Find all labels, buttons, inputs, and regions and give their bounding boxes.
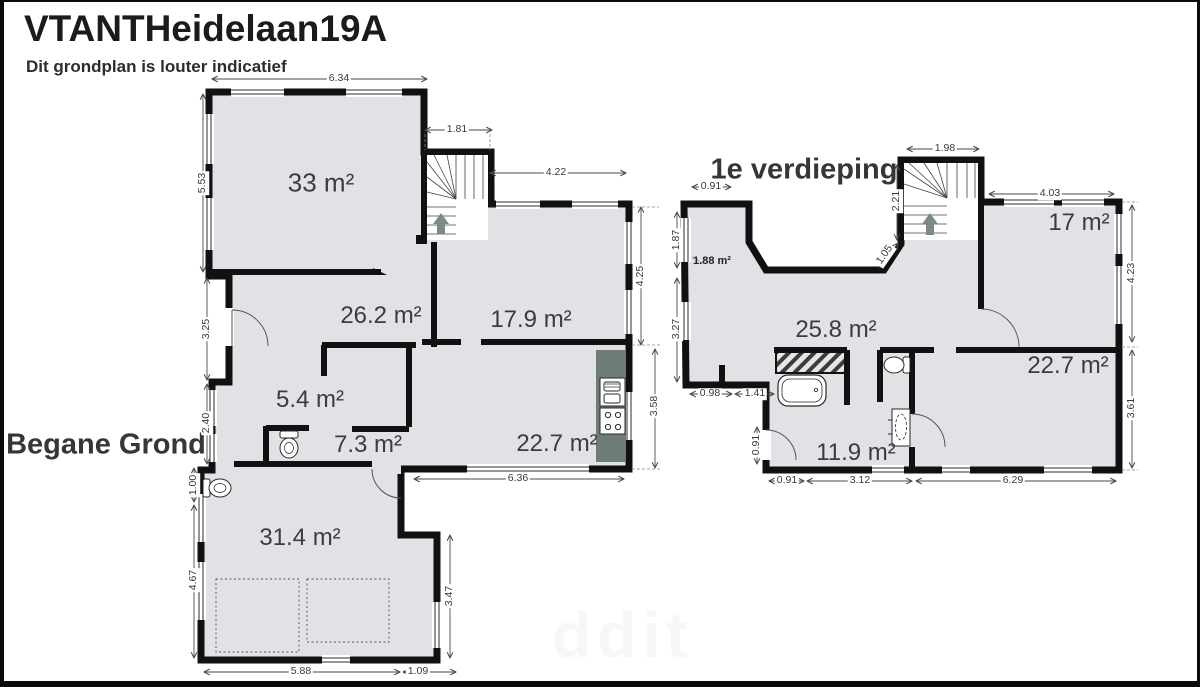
page-subtitle: Dit grondplan is louter indicatief [26,57,287,77]
dim-ff-right-upper: 4.23 [1126,261,1138,285]
first-floor-label: 1e verdieping [711,154,898,187]
dim-gf-bottom-kitchen: 6.36 [506,473,530,485]
room-label-1-88: 1.88 m² [693,255,731,267]
dim-gf-right-upper: 4.25 [635,264,647,288]
dim-ff-bottom-b: 3.12 [848,475,872,487]
first-floor-stairs [904,163,978,240]
dim-gf-stair-width: 1.81 [445,124,469,136]
room-label-25-8: 25.8 m² [795,316,876,344]
dim-gf-left-wc: 1.00 [188,473,200,497]
room-label-17: 17 m² [1048,209,1109,237]
ground-floor-plan [194,79,662,672]
toilet-icon [280,431,298,458]
dim-gf-top-width: 6.34 [327,73,351,85]
dim-gf-left-upper: 5.53 [197,171,209,195]
watermark: ddit [552,598,693,672]
dim-ff-left-lower: 3.27 [671,317,683,341]
dim-ff-bottom-left-b: 1.41 [743,388,767,400]
dim-ff-top-left: 0.91 [699,181,723,193]
room-label-17-9: 17.9 m² [490,306,571,334]
room-label-33: 33 m² [288,168,354,199]
dim-ff-bottom-a: 0.91 [775,475,799,487]
dim-gf-left-lower: 2.40 [201,411,213,435]
dim-ff-left-door: 0.91 [751,433,763,457]
dim-ff-stair-height: 2.21 [891,189,903,213]
dim-ff-bottom-c: 6.29 [1001,475,1025,487]
dim-ff-right-lower: 3.61 [1126,396,1138,420]
dim-ff-left-upper: 1.87 [671,228,683,252]
dim-gf-top-right-width: 4.22 [544,167,568,179]
toilet-icon [884,357,910,373]
kitchen-counter [596,350,626,462]
room-label-11-9: 11.9 m² [816,439,896,467]
dim-gf-right-garage: 3.47 [444,584,456,608]
dim-ff-stair-width: 1.98 [933,143,957,155]
dim-gf-bottom-garage: 5.88 [289,666,313,678]
sink-icon [600,378,625,406]
room-label-7-3: 7.3 m² [334,431,402,459]
bathtub-icon [778,375,826,406]
room-label-31-4: 31.4 m² [259,524,340,552]
ground-floor-label: Begane Grond [6,429,206,462]
room-label-22-7: 22.7 m² [516,430,597,458]
floorplan-drawing [4,2,1197,681]
dim-gf-right-lower: 3.58 [649,394,661,418]
dim-gf-left-mid: 3.25 [201,317,213,341]
dim-gf-left-bottom: 4.67 [188,568,200,592]
room-label-22-7-first: 22.7 m² [1027,352,1108,380]
room-label-5-4: 5.4 m² [276,386,344,414]
page-title: VTANTHeidelaan19A [24,8,387,50]
toilet-icon [203,479,231,497]
room-label-26-2: 26.2 m² [340,302,421,330]
dim-ff-top-right: 4.03 [1038,188,1062,200]
floorplan-page: ddit VTANTHeidelaan19A Dit grondplan is … [0,0,1200,687]
stove-icon [600,408,625,434]
dim-gf-bottom-step: 1.09 [406,666,430,678]
first-floor-plan [677,149,1138,481]
dim-ff-bottom-left-a: 0.98 [698,388,722,400]
shower-icon [776,352,845,373]
